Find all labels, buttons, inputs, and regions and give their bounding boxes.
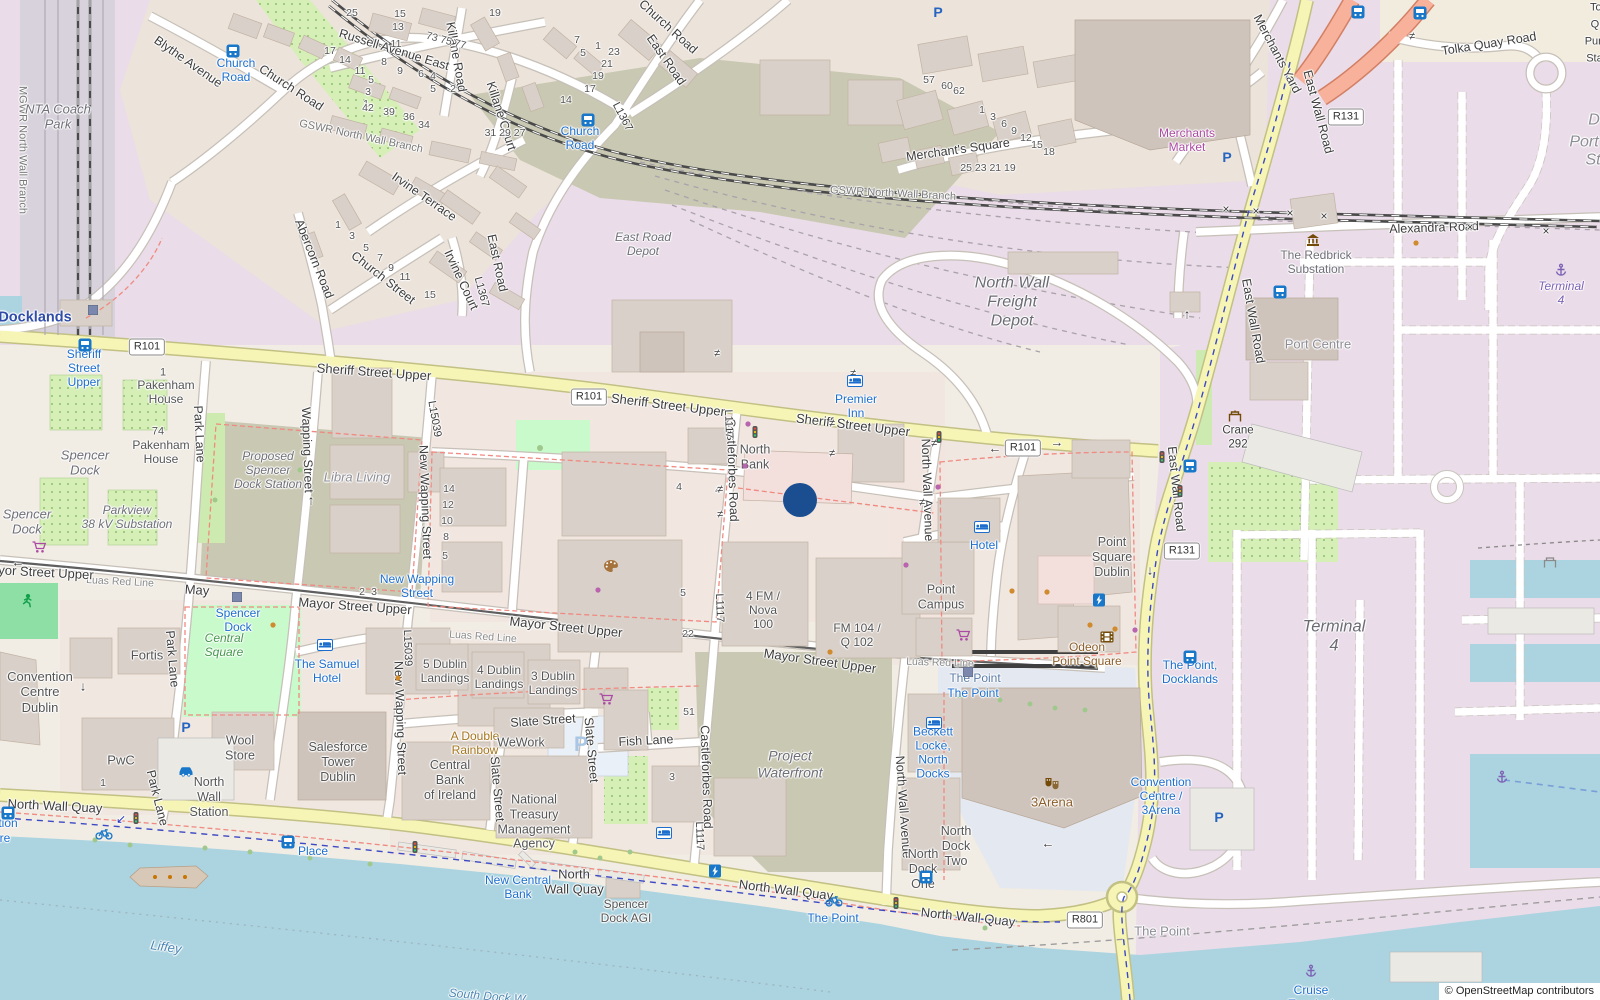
route-shield: R101	[571, 389, 607, 406]
attribution-suffix: contributors	[1533, 985, 1594, 997]
attribution-link[interactable]: OpenStreetMap	[1456, 985, 1534, 997]
attribution: © OpenStreetMap contributors	[1439, 983, 1600, 1000]
route-shield: R101	[1005, 440, 1041, 457]
location-marker	[783, 483, 817, 517]
route-shield: R101	[129, 339, 165, 356]
route-shield: R131	[1328, 109, 1364, 126]
attribution-prefix: ©	[1445, 985, 1456, 997]
route-shield: R131	[1164, 543, 1200, 560]
map-canvas[interactable]: MGWR North Wall BranchNTA Coach ParkBlyt…	[0, 0, 1600, 1000]
route-shield: R801	[1067, 912, 1103, 929]
